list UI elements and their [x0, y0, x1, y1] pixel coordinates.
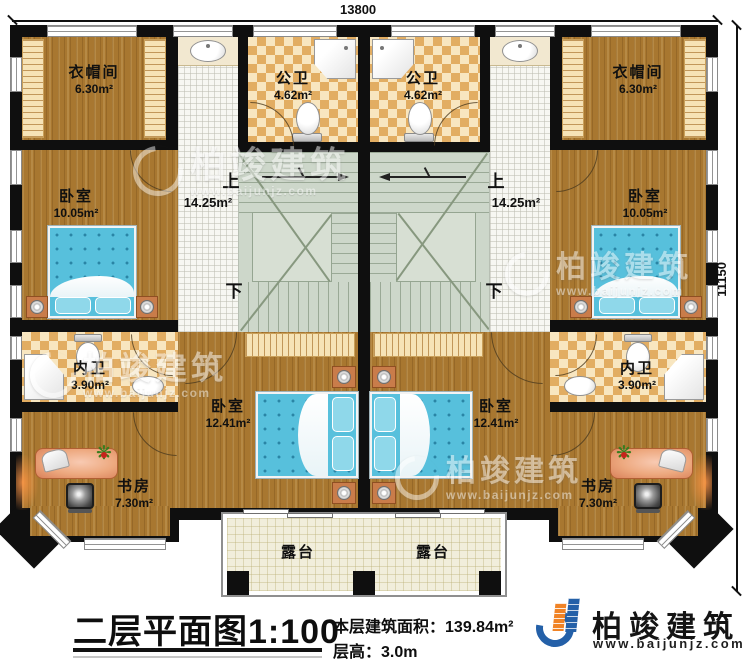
lamp	[574, 300, 588, 314]
keyboard	[636, 509, 660, 513]
stair-treads	[332, 213, 358, 282]
window	[391, 25, 475, 37]
bed-sheet	[298, 394, 328, 476]
lamp	[337, 370, 351, 384]
toilet-tank	[624, 334, 652, 342]
window	[10, 418, 22, 452]
bay-window-left	[84, 538, 166, 550]
sliding-door-right	[395, 513, 441, 518]
lamp	[684, 300, 698, 314]
dimension-top-label: 13800	[340, 2, 376, 17]
room-label-terrace-left: 露台	[281, 544, 315, 562]
window	[10, 285, 22, 318]
plant: ❋	[613, 444, 635, 466]
pillow	[639, 297, 675, 314]
wardrobe-right	[373, 333, 483, 357]
floor-area-label: 本层建筑面积：	[333, 619, 445, 636]
room-label-bedroom-large-left: 卧室 12.41m²	[206, 398, 251, 430]
stair-landing-left	[252, 212, 332, 282]
keyboard	[68, 509, 92, 513]
lamp	[337, 486, 351, 500]
closet-right	[684, 39, 706, 138]
terrace-pillar	[227, 571, 249, 595]
window	[495, 25, 555, 37]
dimension-top-line	[12, 20, 718, 22]
sliding-door-right	[439, 509, 485, 514]
stair-treads	[238, 152, 358, 213]
stair-direction-arrow-left	[262, 176, 340, 178]
window	[706, 230, 718, 263]
bath-sink	[132, 376, 164, 396]
window	[706, 336, 718, 360]
brand-logo-icon	[536, 597, 588, 655]
lamp	[377, 486, 391, 500]
window	[591, 25, 681, 37]
room-label-bedroom-large-right: 卧室 12.41m²	[474, 398, 519, 430]
room-label-public-bath-left: 公卫 4.62m²	[274, 70, 312, 102]
plant: ❋	[93, 444, 115, 466]
stair-direction-arrow-right	[388, 176, 466, 178]
wall-lamp-glow	[690, 455, 712, 510]
stair-up-label-right: 上	[488, 167, 505, 192]
window	[706, 418, 718, 452]
shower-drain	[380, 46, 384, 50]
sliding-door-left	[243, 509, 289, 514]
floor-height-line: 层高：3.0m	[333, 638, 417, 662]
floor-height-label: 层高：	[333, 644, 381, 661]
room-label-terrace-right: 露台	[416, 544, 450, 562]
sliding-door-left	[287, 513, 333, 518]
window	[706, 285, 718, 318]
pillow	[332, 436, 354, 471]
toilet-bowl	[408, 102, 432, 135]
toilet-tank	[74, 334, 102, 342]
window	[47, 25, 137, 37]
room-label-inner-bath-right: 内卫 3.90m²	[618, 360, 656, 392]
dimension-right-line	[736, 25, 738, 592]
logo-tower-blue	[565, 598, 580, 632]
stair-down-label-right: 下	[486, 277, 503, 302]
room-label-bedroom-small-left: 卧室 10.05m²	[54, 188, 99, 220]
faucet-dot	[206, 44, 210, 48]
faucet-dot	[518, 44, 522, 48]
title-underline-thin	[73, 656, 322, 658]
shower-drain	[344, 46, 348, 50]
floor-area-value: 139.84m²	[445, 619, 514, 636]
room-label-bedroom-small-right: 卧室 10.05m²	[623, 188, 668, 220]
window	[173, 25, 233, 37]
lamp	[140, 300, 154, 314]
room-label-study-right: 书房 7.30m²	[579, 478, 617, 510]
stair-treads	[370, 152, 490, 213]
window	[10, 150, 22, 185]
plan-scale: 1:100	[248, 613, 340, 651]
floor-area-line: 本层建筑面积：139.84m²	[333, 613, 514, 637]
closet-left	[562, 39, 584, 138]
pillow	[332, 397, 354, 432]
hall-area-left: 14.25m²	[184, 195, 232, 210]
room-label-study-left: 书房 7.30m²	[115, 478, 153, 510]
window	[706, 150, 718, 185]
room-label-inner-bath-left: 内卫 3.90m²	[71, 360, 109, 392]
arrow-head-icon	[379, 173, 390, 181]
room-label-public-bath-right: 公卫 4.62m²	[404, 70, 442, 102]
stair-up-label-left: 上	[223, 167, 240, 192]
terrace-pillar	[353, 571, 375, 595]
floor-height-value: 3.0m	[381, 644, 417, 661]
window	[10, 230, 22, 263]
closet-left	[22, 39, 44, 138]
bay-window-right	[562, 538, 644, 550]
floorplan-canvas: 13800 11150	[0, 0, 750, 666]
pillow	[95, 297, 131, 314]
room-label-cloakroom-right: 衣帽间 6.30m²	[612, 64, 663, 96]
terrace-pillar	[479, 571, 501, 595]
stair-down-label-left: 下	[226, 277, 243, 302]
window	[10, 57, 22, 92]
stair-treads	[238, 282, 358, 332]
bath-sink	[564, 376, 596, 396]
computer-monitor	[66, 483, 94, 509]
closet-right	[144, 39, 166, 138]
arrow-head-icon	[338, 173, 349, 181]
window	[253, 25, 337, 37]
toilet-bowl	[296, 102, 320, 135]
plan-title: 二层平面图1:100	[73, 604, 340, 653]
brand-website: www.baijunjz.com	[593, 636, 745, 651]
title-underline	[73, 648, 322, 652]
stair-treads	[370, 213, 396, 282]
room-label-cloakroom-left: 衣帽间 6.30m²	[68, 64, 119, 96]
pillow	[55, 297, 91, 314]
wardrobe-left	[245, 333, 355, 357]
window	[706, 57, 718, 92]
hall-area-right: 14.25m²	[492, 195, 540, 210]
plan-title-text: 二层平面图	[73, 613, 248, 651]
lamp	[377, 370, 391, 384]
pillow	[599, 297, 635, 314]
computer-monitor	[634, 483, 662, 509]
lamp	[30, 300, 44, 314]
pillow	[374, 436, 396, 471]
pillow	[374, 397, 396, 432]
window	[10, 336, 22, 360]
